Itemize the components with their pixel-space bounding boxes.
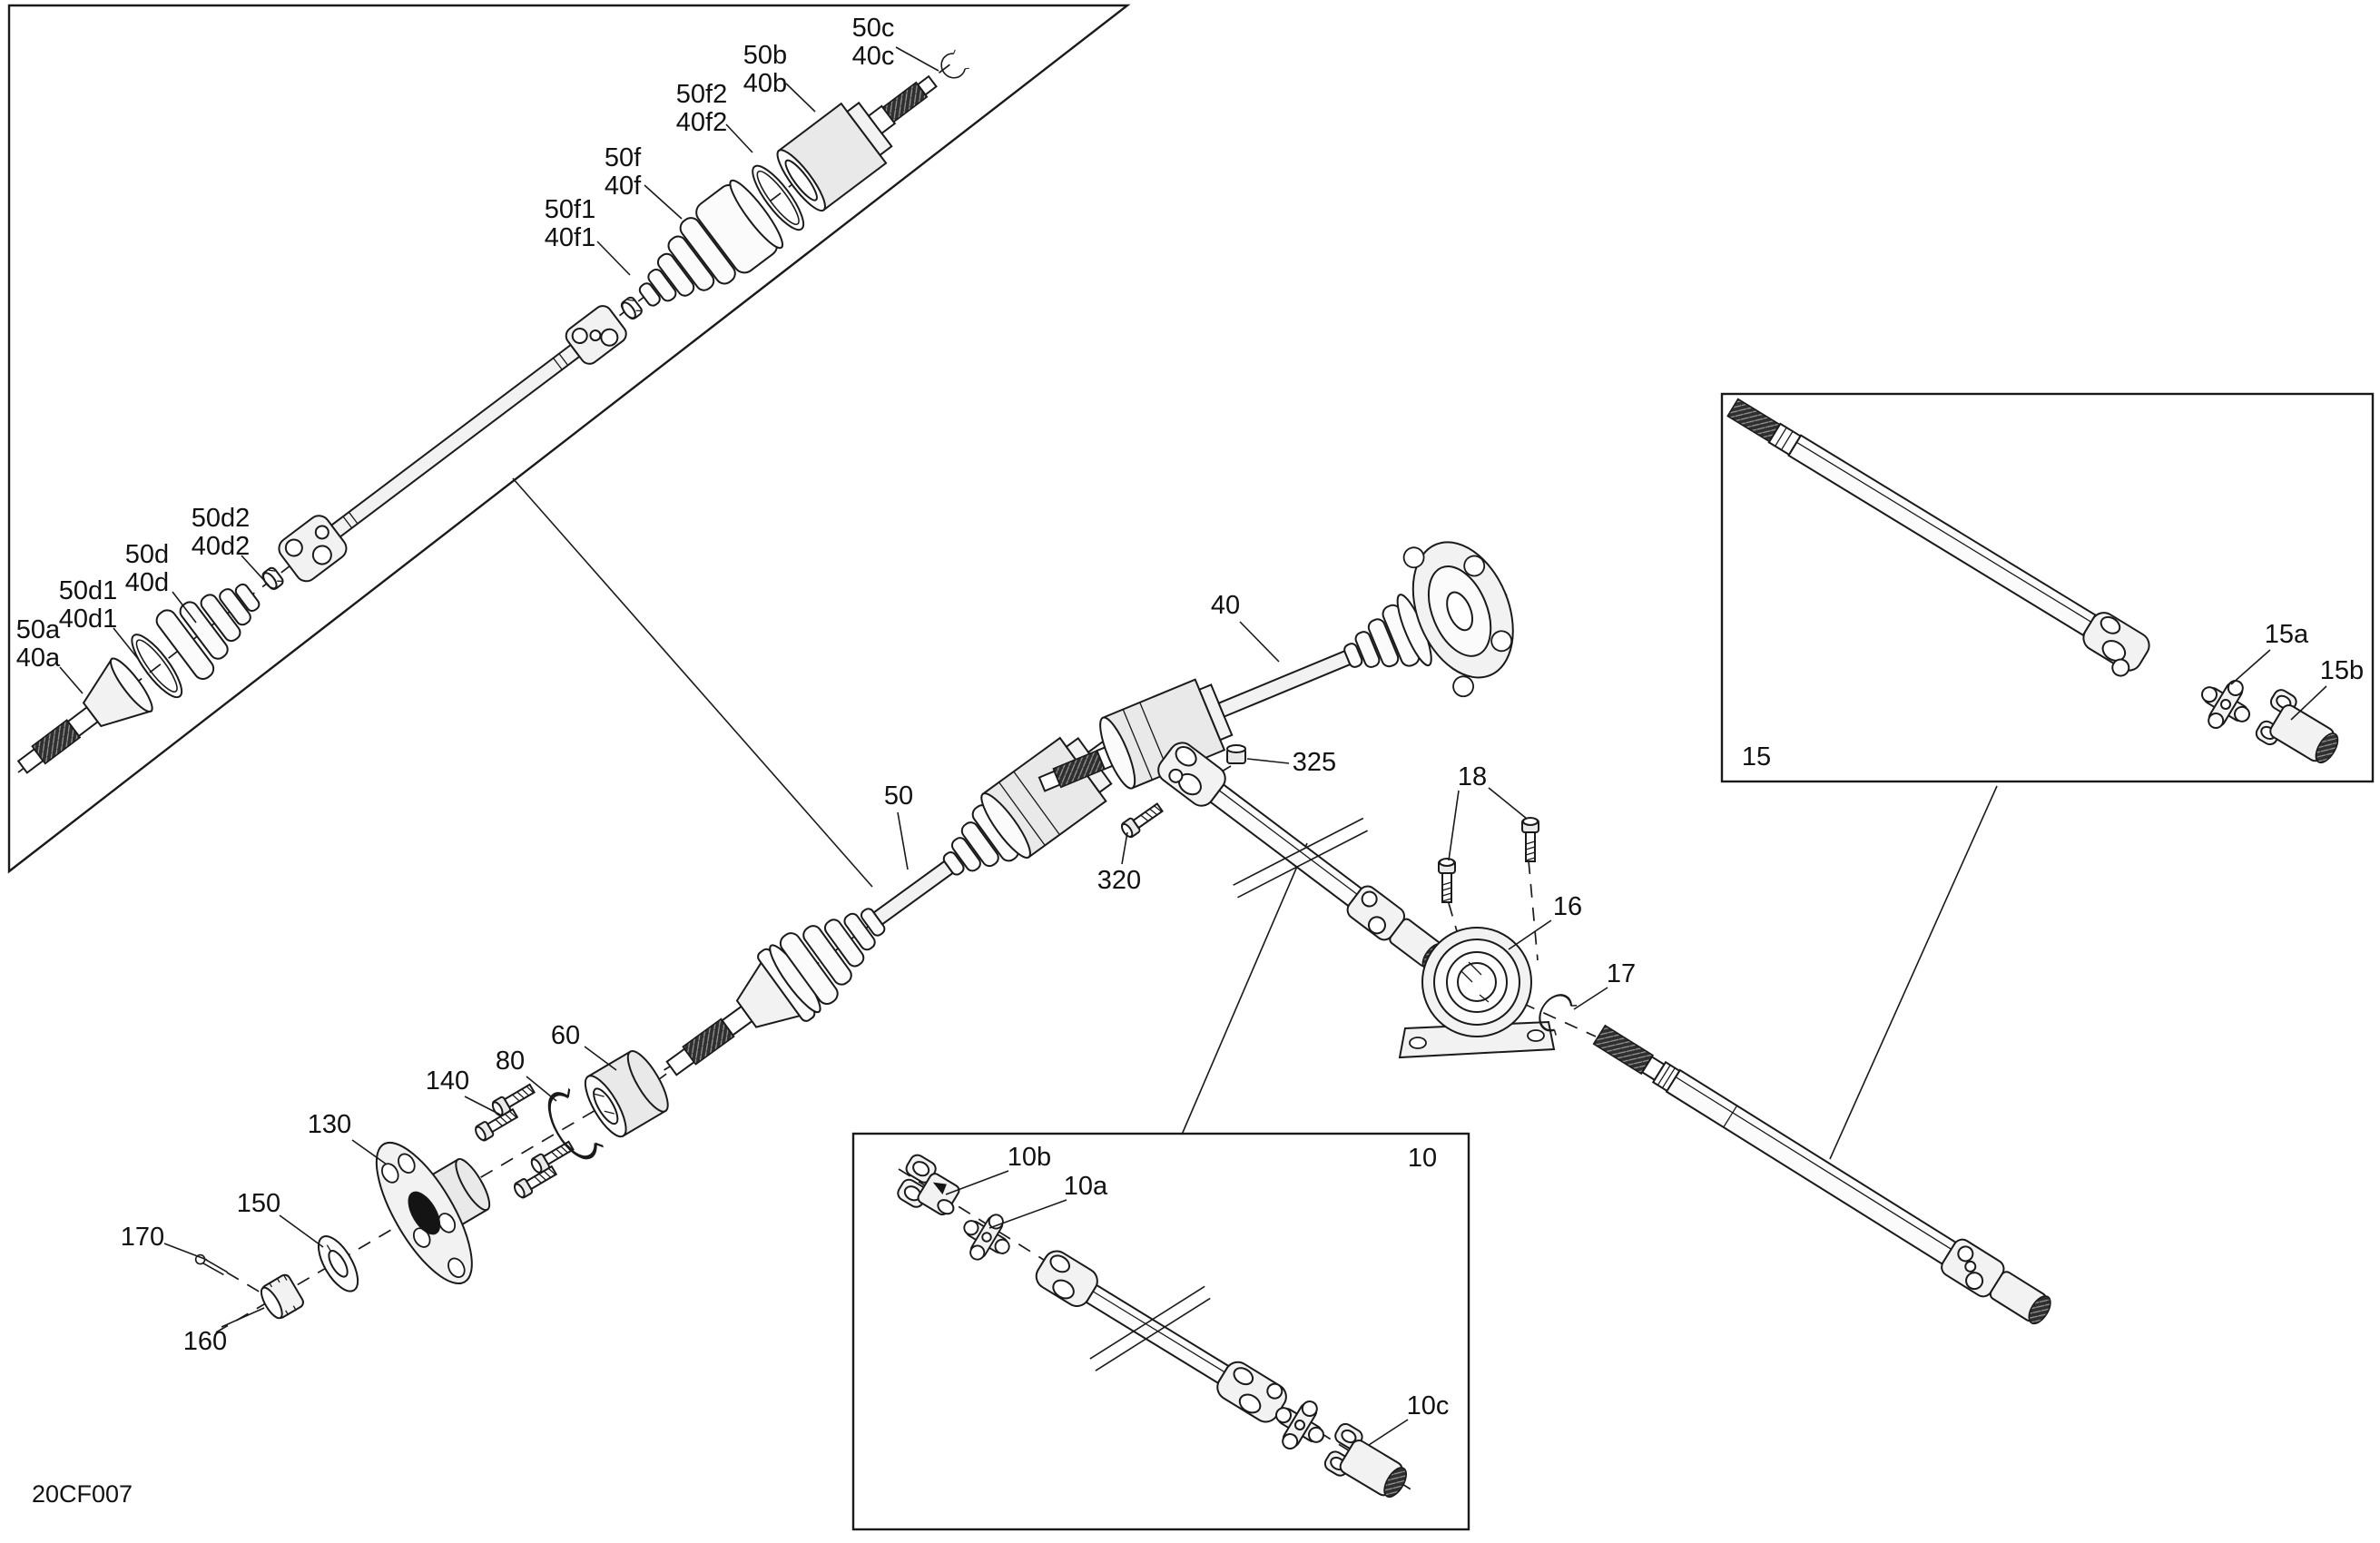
rear-propshaft — [1588, 1017, 2057, 1331]
washer-150 — [310, 1230, 365, 1297]
part-label-50c-40c: 50c40c — [852, 14, 895, 71]
coupler-yoke-15b — [2250, 687, 2347, 775]
parts-diagram-page: 50c40c50b40b50f240f250f40f50f140f150d240… — [0, 0, 2380, 1543]
drawing-code: 20CF007 — [32, 1480, 133, 1508]
leader-line-150 — [280, 1215, 323, 1247]
bolt-18-right — [1522, 818, 1539, 861]
leader-line-50f2-40f2 — [726, 124, 752, 152]
part-label-18: 18 — [1458, 762, 1487, 791]
double-yoke-10b — [890, 1153, 969, 1225]
part-label-130: 130 — [308, 1110, 351, 1139]
part-label-50d2-40d2: 50d240d2 — [192, 504, 251, 561]
propshaft-center-section — [1008, 1208, 1314, 1464]
propshaft-tube — [1667, 1070, 1955, 1263]
wheel-studs-140-lower — [506, 1138, 581, 1199]
wheel-studs-140-upper — [467, 1081, 542, 1142]
center-axes — [18, 64, 1596, 1490]
boot-clamp-50d2 — [261, 566, 285, 592]
part-label-50: 50 — [884, 781, 913, 811]
wheel-hub-130 — [359, 1111, 521, 1296]
leader-line-50d1-40d1 — [113, 628, 139, 660]
inset-front-cv-axle-exploded — [0, 25, 988, 800]
leader-line-50 — [898, 812, 908, 870]
splined-end — [1594, 1026, 1653, 1074]
flange-nut-325 — [1227, 745, 1245, 763]
part-label-50a-40a: 50a40a — [16, 615, 61, 673]
part-label-50d1-40d1: 50d140d1 — [59, 576, 118, 634]
bearing-60 — [578, 1047, 675, 1143]
axle-shaft — [331, 345, 579, 536]
exploded-parts-diagram: 50c40c50b40b50f240f250f40f50f140f150d240… — [0, 0, 2380, 1543]
part-label-15b: 15b — [2320, 656, 2364, 685]
part-label-10c: 10c — [1407, 1391, 1450, 1420]
part-label-10b: 10b — [1008, 1143, 1051, 1172]
leader-line-50c-40c — [896, 47, 939, 71]
part-label-16: 16 — [1553, 892, 1582, 921]
part-label-50f1-40f1: 50f140f1 — [545, 195, 595, 252]
part-label-17: 17 — [1607, 959, 1636, 988]
bolt-18-left — [1439, 859, 1455, 902]
splined-coupler — [1989, 1270, 2055, 1327]
part-label-170: 170 — [121, 1223, 164, 1252]
part-label-160: 160 — [183, 1327, 227, 1356]
leader-line-18 — [1449, 791, 1459, 860]
part-label-325: 325 — [1293, 748, 1336, 777]
inset-triangle-frame — [9, 5, 1127, 871]
connector-inset-to-axle-50 — [513, 478, 872, 887]
leader-line-160 — [221, 1308, 264, 1327]
bolt-320 — [1119, 801, 1165, 839]
cv-boot-50d — [153, 562, 277, 683]
axle-shaft — [1219, 651, 1351, 716]
leader-line-60 — [585, 1047, 616, 1070]
connector-propshaft-to-box-10 — [1182, 843, 1307, 1135]
connector-box-15-to-rear-shaft — [1830, 786, 1997, 1159]
leader-line-170 — [164, 1243, 207, 1260]
part-label-10: 10 — [1408, 1144, 1437, 1173]
leader-line-50b-40b — [786, 84, 815, 112]
leader-line-17 — [1574, 988, 1608, 1009]
part-label-15a: 15a — [2265, 620, 2309, 649]
wheel-hub-assembly — [226, 1007, 698, 1374]
u-joint-cross-15a — [2189, 668, 2262, 741]
part-label-50f-40f: 50f40f — [605, 143, 642, 201]
coupler-yoke-10c — [1318, 1421, 1416, 1507]
leader-line-320 — [1122, 832, 1127, 864]
leader-line-18 — [1489, 788, 1527, 819]
leader-line-10b — [946, 1171, 1008, 1194]
part-label-320: 320 — [1097, 866, 1141, 895]
leader-line-10c — [1369, 1420, 1408, 1445]
part-label-50b-40b: 50b40b — [743, 41, 787, 98]
leader-line-50f1-40f1 — [597, 241, 630, 275]
circlip-50c — [937, 49, 969, 83]
leader-line-15a — [2231, 650, 2270, 684]
front-propshaft-15 — [1718, 390, 2154, 682]
detail-box-15-contents — [1718, 390, 2348, 775]
leader-line-325 — [1247, 759, 1289, 763]
leader-line-40 — [1240, 622, 1279, 662]
part-label-140: 140 — [426, 1066, 469, 1096]
part-label-60: 60 — [551, 1021, 580, 1050]
u-joint-cross-10a — [952, 1203, 1021, 1272]
part-label-15: 15 — [1742, 742, 1771, 771]
detail-box-10-contents — [890, 1153, 1415, 1507]
part-label-150: 150 — [237, 1189, 280, 1218]
leader-line-10a — [989, 1200, 1067, 1228]
part-label-50d-40d: 50d40d — [125, 540, 169, 597]
part-label-50f2-40f2: 50f240f2 — [676, 80, 727, 137]
axle-shaft — [874, 861, 953, 924]
cv-housing-50b — [771, 52, 955, 216]
part-label-80: 80 — [496, 1047, 525, 1076]
castle-nut-160 — [257, 1273, 306, 1322]
leader-line-50a-40a — [60, 667, 83, 693]
part-label-40: 40 — [1211, 591, 1240, 620]
leader-line-16 — [1509, 920, 1551, 949]
leader-line-50f-40f — [644, 185, 682, 219]
part-label-10a: 10a — [1064, 1172, 1108, 1201]
